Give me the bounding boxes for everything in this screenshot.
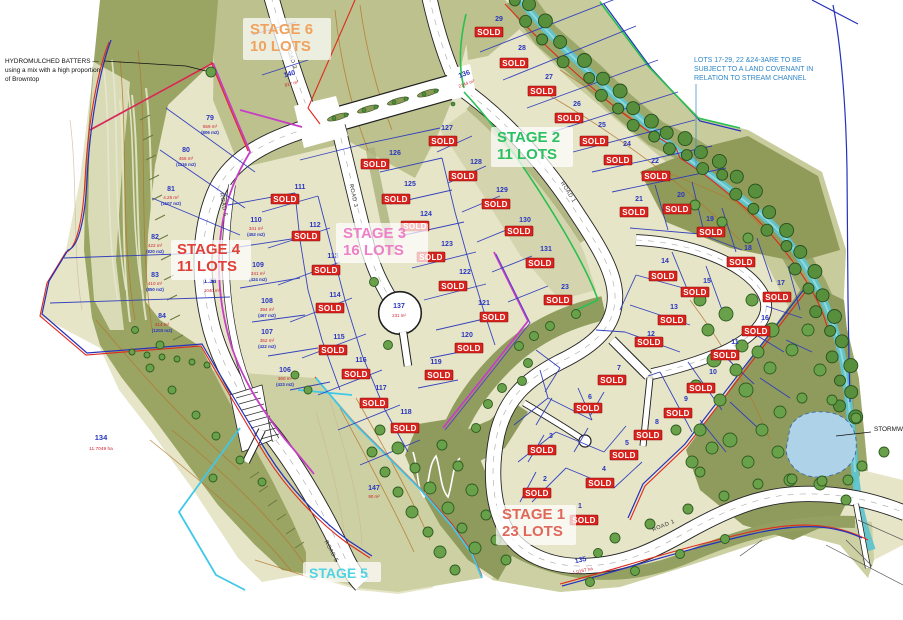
svg-text:STAGE 6: STAGE 6 [250, 21, 313, 38]
svg-text:3: 3 [549, 433, 553, 440]
svg-text:STAGE 3: STAGE 3 [343, 225, 406, 242]
svg-text:SOLD: SOLD [600, 376, 623, 385]
svg-text:SOLD: SOLD [644, 172, 667, 181]
svg-text:131: 131 [540, 246, 552, 253]
svg-text:19: 19 [706, 216, 714, 223]
svg-text:9: 9 [684, 396, 688, 403]
svg-text:SOLD: SOLD [273, 195, 296, 204]
svg-text:(820 m2): (820 m2) [146, 249, 164, 254]
svg-text:SOLD: SOLD [606, 156, 629, 165]
svg-text:83: 83 [151, 272, 159, 279]
svg-text:80: 80 [182, 147, 190, 154]
svg-text:422 m²: 422 m² [148, 243, 163, 248]
svg-text:SOLD: SOLD [576, 404, 599, 413]
svg-text:26: 26 [573, 101, 581, 108]
svg-text:17: 17 [777, 280, 785, 287]
svg-text:84: 84 [158, 313, 166, 320]
svg-text:410 m²: 410 m² [148, 281, 163, 286]
svg-text:SUBJECT TO A LAND COVENANT IN: SUBJECT TO A LAND COVENANT IN [694, 66, 813, 73]
svg-text:SOLD: SOLD [451, 172, 474, 181]
svg-text:559 m²: 559 m² [203, 124, 218, 129]
svg-text:SOLD: SOLD [557, 114, 580, 123]
svg-text:SOLD: SOLD [427, 371, 450, 380]
svg-text:SOLD: SOLD [713, 351, 736, 360]
svg-text:SOLD: SOLD [441, 282, 464, 291]
svg-text:(1107 m2): (1107 m2) [161, 201, 182, 206]
svg-text:231 m²: 231 m² [392, 313, 406, 318]
svg-text:1040 m²: 1040 m² [204, 288, 221, 293]
svg-text:SOLD: SOLD [318, 304, 341, 313]
svg-text:20: 20 [677, 192, 685, 199]
svg-text:(1116 m2): (1116 m2) [176, 162, 196, 167]
svg-text:122: 122 [459, 269, 471, 276]
svg-text:SOLD: SOLD [507, 227, 530, 236]
svg-text:456 m²: 456 m² [179, 156, 194, 161]
svg-text:SOLD: SOLD [666, 409, 689, 418]
svg-text:SOLD: SOLD [344, 370, 367, 379]
svg-text:STAGE 1: STAGE 1 [502, 506, 565, 523]
svg-text:24: 24 [623, 141, 631, 148]
svg-text:13: 13 [670, 304, 678, 311]
svg-text:14: 14 [661, 258, 669, 265]
svg-text:23: 23 [561, 284, 569, 291]
svg-text:SOLD: SOLD [729, 258, 752, 267]
svg-text:2: 2 [543, 476, 547, 483]
svg-text:SOLD: SOLD [393, 424, 416, 433]
svg-text:21: 21 [635, 196, 643, 203]
svg-text:4.25 m²: 4.25 m² [163, 195, 179, 200]
svg-text:352 m²: 352 m² [260, 338, 275, 343]
svg-text:25: 25 [598, 122, 606, 129]
svg-text:5: 5 [625, 440, 629, 447]
svg-text:126: 126 [389, 150, 401, 157]
svg-text:SOLD: SOLD [314, 266, 337, 275]
svg-text:360 m²: 360 m² [278, 376, 293, 381]
svg-text:(1203 m2): (1203 m2) [152, 328, 173, 333]
svg-text:SOLD: SOLD [588, 479, 611, 488]
svg-text:(806 m2): (806 m2) [201, 130, 219, 135]
svg-text:(467 m2): (467 m2) [258, 313, 276, 318]
svg-text:107: 107 [261, 329, 273, 336]
svg-text:(424 m2): (424 m2) [249, 277, 267, 282]
svg-text:SOLD: SOLD [321, 346, 344, 355]
svg-text:147: 147 [368, 485, 380, 492]
svg-text:106: 106 [279, 367, 291, 374]
svg-text:SOLD: SOLD [622, 208, 645, 217]
svg-text:7: 7 [617, 365, 621, 372]
svg-text:4: 4 [602, 466, 606, 473]
svg-text:using a mix with a high propor: using a mix with a high proportion [5, 67, 101, 74]
svg-text:23 LOTS: 23 LOTS [502, 523, 563, 540]
svg-text:341 m²: 341 m² [249, 226, 264, 231]
svg-text:22: 22 [651, 158, 659, 165]
svg-text:SOLD: SOLD [660, 316, 683, 325]
svg-text:119: 119 [430, 359, 441, 366]
svg-text:112: 112 [309, 222, 320, 229]
svg-text:27: 27 [545, 74, 553, 81]
svg-text:394 m²: 394 m² [260, 307, 275, 312]
svg-text:SOLD: SOLD [431, 137, 454, 146]
svg-text:SOLD: SOLD [546, 296, 569, 305]
svg-text:29: 29 [495, 16, 503, 23]
svg-text:10 LOTS: 10 LOTS [250, 38, 311, 55]
svg-text:SOLD: SOLD [683, 288, 706, 297]
svg-text:(423 m2): (423 m2) [276, 382, 294, 387]
svg-text:SOLD: SOLD [362, 399, 385, 408]
svg-text:SOLD: SOLD [636, 431, 659, 440]
svg-text:123: 123 [441, 241, 453, 248]
svg-text:18: 18 [744, 245, 752, 252]
svg-text:11 LOTS: 11 LOTS [177, 258, 237, 275]
svg-text:79: 79 [206, 115, 214, 122]
svg-text:117: 117 [375, 385, 386, 392]
svg-text:128: 128 [470, 159, 482, 166]
svg-text:(452 m2): (452 m2) [247, 232, 265, 237]
svg-text:STORMWATER: STORMWATER [874, 426, 903, 433]
svg-text:SOLD: SOLD [582, 137, 605, 146]
svg-text:16: 16 [761, 315, 769, 322]
svg-text:127: 127 [441, 125, 453, 132]
svg-text:SOLD: SOLD [502, 59, 525, 68]
svg-text:SOLD: SOLD [457, 344, 480, 353]
svg-text:STAGE 2: STAGE 2 [497, 129, 560, 146]
svg-text:109: 109 [252, 262, 264, 269]
svg-text:81: 81 [167, 186, 175, 193]
svg-text:SOLD: SOLD [689, 384, 712, 393]
svg-text:121: 121 [478, 300, 490, 307]
svg-text:108: 108 [261, 298, 273, 305]
svg-text:8: 8 [655, 419, 659, 426]
svg-text:SOLD: SOLD [530, 446, 553, 455]
svg-text:SOLD: SOLD [477, 28, 500, 37]
svg-text:90 m²: 90 m² [368, 494, 380, 499]
svg-text:SOLD: SOLD [665, 205, 688, 214]
svg-text:SOLD: SOLD [363, 160, 386, 169]
svg-text:10: 10 [709, 369, 717, 376]
svg-text:124: 124 [420, 211, 432, 218]
svg-text:SOLD: SOLD [530, 87, 553, 96]
svg-text:SOLD: SOLD [651, 272, 674, 281]
svg-text:LOTS 17-29, 22 &24-3ARE TO BE: LOTS 17-29, 22 &24-3ARE TO BE [694, 57, 802, 64]
svg-text:SOLD: SOLD [384, 195, 407, 204]
svg-text:116: 116 [355, 357, 366, 364]
svg-text:114: 114 [329, 292, 340, 299]
svg-text:STAGE 4: STAGE 4 [177, 241, 241, 258]
svg-text:SOLD: SOLD [765, 293, 788, 302]
svg-text:134: 134 [95, 433, 108, 442]
svg-text:of Browntop: of Browntop [5, 76, 40, 83]
svg-text:SOLD: SOLD [528, 259, 551, 268]
svg-text:130: 130 [519, 217, 531, 224]
svg-text:SOLD: SOLD [612, 451, 635, 460]
svg-text:16 LOTS: 16 LOTS [343, 242, 404, 259]
svg-text:11: 11 [731, 339, 739, 346]
svg-text:11.7049 ha: 11.7049 ha [89, 446, 113, 452]
svg-text:82: 82 [151, 234, 159, 241]
svg-text:SOLD: SOLD [744, 327, 767, 336]
svg-text:SOLD: SOLD [699, 228, 722, 237]
svg-text:137: 137 [393, 303, 405, 310]
svg-text:129: 129 [496, 187, 508, 194]
svg-text:(422 m2): (422 m2) [258, 344, 276, 349]
svg-text:118: 118 [400, 409, 411, 416]
svg-text:120: 120 [461, 332, 473, 339]
svg-text:15: 15 [703, 278, 711, 285]
svg-text:111: 111 [295, 184, 306, 191]
svg-text:341 m²: 341 m² [251, 271, 266, 276]
svg-text:(850 m2): (850 m2) [146, 287, 164, 292]
svg-text:SOLD: SOLD [637, 338, 660, 347]
svg-text:SOLD: SOLD [482, 313, 505, 322]
svg-text:115: 115 [333, 334, 344, 341]
svg-text:SOLD: SOLD [294, 232, 317, 241]
svg-text:110: 110 [250, 217, 261, 224]
svg-text:125: 125 [404, 181, 416, 188]
svg-text:SOLD: SOLD [525, 489, 548, 498]
svg-text:STAGE 5: STAGE 5 [309, 565, 368, 581]
svg-text:HYDROMULCHED BATTERS —: HYDROMULCHED BATTERS — [5, 58, 99, 65]
svg-text:SOLD: SOLD [484, 200, 507, 209]
svg-text:28: 28 [518, 45, 526, 52]
svg-text:414 m²: 414 m² [155, 322, 170, 327]
svg-text:RELATION TO STREAM CHANNEL: RELATION TO STREAM CHANNEL [694, 75, 807, 82]
svg-text:6: 6 [588, 394, 592, 401]
svg-text:11 LOTS: 11 LOTS [497, 146, 557, 163]
svg-text:1: 1 [578, 503, 582, 510]
